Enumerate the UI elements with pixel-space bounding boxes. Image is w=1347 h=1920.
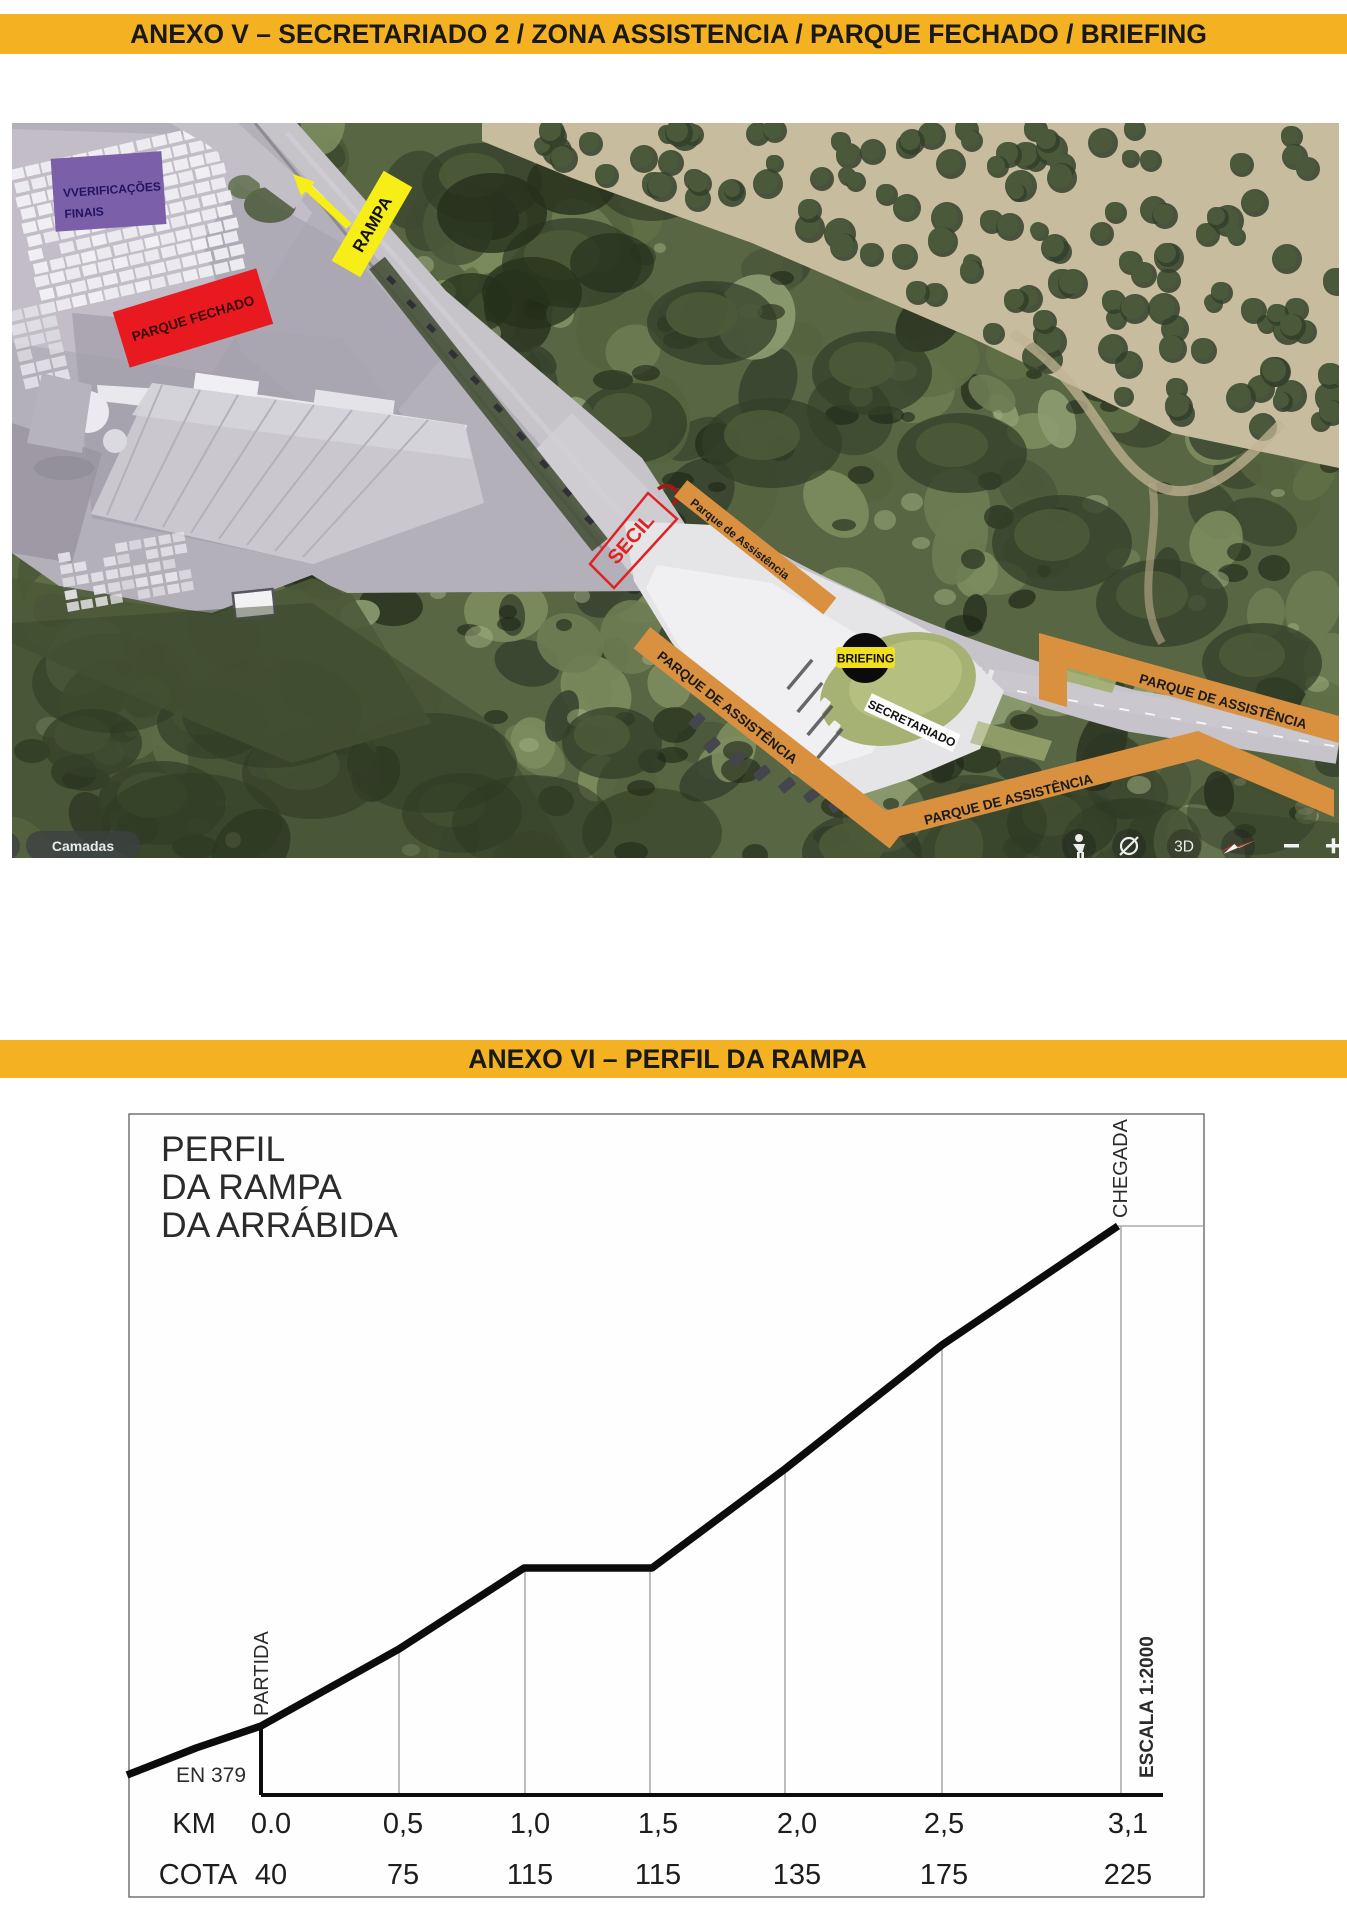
svg-text:0,5: 0,5 [383,1808,423,1840]
svg-text:40: 40 [255,1859,287,1891]
svg-text:PERFIL: PERFIL [161,1129,285,1169]
svg-text:CHEGADA: CHEGADA [1110,1118,1132,1218]
svg-text:115: 115 [507,1859,553,1891]
svg-text:DA ARRÁBIDA: DA ARRÁBIDA [161,1205,398,1245]
svg-text:175: 175 [920,1859,968,1891]
svg-text:135: 135 [773,1859,821,1891]
svg-text:2,5: 2,5 [924,1808,964,1840]
svg-text:PARTIDA: PARTIDA [251,1631,273,1716]
svg-text:1,0: 1,0 [510,1808,550,1840]
svg-text:115: 115 [635,1859,681,1891]
svg-text:KM: KM [172,1808,216,1840]
svg-text:75: 75 [387,1859,419,1891]
svg-text:225: 225 [1104,1859,1152,1891]
svg-text:2,0: 2,0 [777,1808,817,1840]
svg-text:1,5: 1,5 [638,1808,678,1840]
svg-text:ESCALA 1:2000: ESCALA 1:2000 [1137,1636,1158,1778]
svg-text:EN 379: EN 379 [176,1764,246,1787]
svg-text:DA RAMPA: DA RAMPA [161,1167,342,1207]
svg-text:0.0: 0.0 [251,1808,291,1840]
svg-text:3,1: 3,1 [1108,1808,1148,1840]
svg-text:COTA: COTA [159,1859,238,1891]
